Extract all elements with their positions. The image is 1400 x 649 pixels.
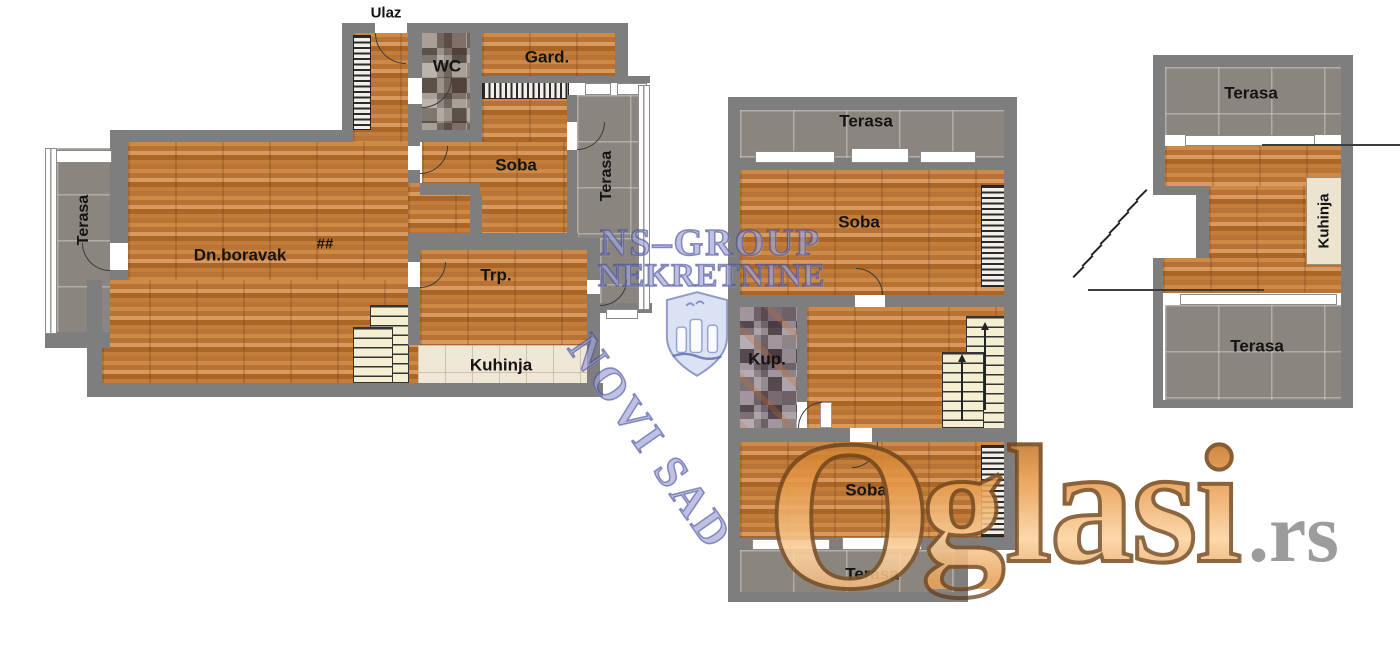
wall — [87, 383, 603, 397]
floor-mark: ## — [317, 237, 334, 252]
room-label-terrace-top: Terasa — [839, 113, 893, 130]
room-label-kitchen: Kuhinja — [1317, 194, 1332, 249]
site-watermark-initial: O — [766, 407, 933, 622]
door-opening — [375, 23, 407, 33]
section-line — [1088, 289, 1264, 291]
wall — [567, 150, 577, 238]
wall — [482, 76, 650, 83]
wall — [470, 195, 482, 235]
door-opening — [408, 146, 420, 170]
door-opening — [855, 295, 885, 307]
wall — [885, 295, 1004, 307]
roof-hatch-mark — [1072, 266, 1084, 278]
wall — [1341, 55, 1353, 408]
room-label-entrance: Ulaz — [371, 6, 402, 21]
wardrobe-cabinet — [981, 185, 1005, 287]
room-label-kitchen: Kuhinja — [470, 357, 532, 374]
room-label-bathroom: Kup. — [748, 351, 786, 368]
window-sill — [55, 150, 112, 163]
window-sill — [920, 151, 976, 163]
site-watermark: O g lasi .rs — [766, 381, 1339, 596]
room-label-terrace-right: Terasa — [599, 151, 615, 201]
room-label-terrace-top: Terasa — [1224, 85, 1278, 102]
stair-direction-arrow — [958, 354, 966, 362]
terrace-window — [45, 148, 57, 334]
site-watermark-g: g — [921, 421, 1005, 589]
wall — [470, 23, 482, 142]
wall — [1196, 195, 1209, 258]
wall — [45, 332, 110, 348]
wall — [110, 130, 346, 142]
wall — [110, 270, 128, 280]
wall — [575, 238, 600, 250]
window-sill — [585, 83, 611, 95]
door-opening — [110, 243, 128, 270]
window-sill — [1180, 294, 1337, 305]
wall — [567, 95, 577, 122]
room-label-bedroom-top: Soba — [838, 214, 880, 231]
room-label-bedroom: Soba — [495, 157, 537, 174]
door-opening — [408, 262, 420, 287]
wall — [408, 287, 420, 345]
wall — [1153, 186, 1209, 195]
wall — [408, 250, 420, 262]
wall — [740, 295, 855, 307]
wall — [728, 97, 1017, 110]
wall — [408, 233, 578, 250]
agency-watermark-line1: NS–GROUP — [600, 224, 821, 262]
wall — [615, 23, 628, 76]
room-label-living-room: Dn.boravak — [194, 247, 287, 264]
window-sill — [851, 148, 909, 163]
section-line — [1262, 144, 1400, 146]
wall — [110, 142, 128, 243]
wall — [408, 33, 422, 78]
door-opening — [408, 78, 422, 104]
wall — [408, 170, 420, 183]
door-opening — [567, 122, 577, 150]
window-sill — [606, 309, 638, 319]
wardrobe-cabinet — [482, 82, 569, 99]
wardrobe-cabinet — [353, 35, 371, 130]
wall — [1153, 67, 1165, 186]
staircase — [353, 327, 393, 383]
room-label-dining: Trp. — [480, 267, 511, 284]
room-label-terrace-bottom: Terasa — [1230, 338, 1284, 355]
room-label-wc: WC — [433, 58, 461, 75]
agency-watermark-line2: NEKRETNINE — [598, 260, 825, 293]
floorplan-canvas: Ulaz WC Gard. Soba Terasa Terasa Dn.bora… — [0, 0, 1400, 649]
wall — [1153, 55, 1353, 67]
room-label-wardrobe-room: Gard. — [525, 49, 569, 66]
window-sill — [755, 151, 835, 163]
wall — [420, 183, 480, 195]
bedroom-floor — [482, 97, 567, 142]
wall — [342, 33, 353, 142]
stair-direction-arrow — [981, 322, 989, 330]
wall — [408, 104, 422, 132]
novi-sad-shield-logo — [663, 290, 731, 378]
site-watermark-rest: lasi — [1005, 421, 1240, 589]
room-label-terrace-left: Terasa — [76, 195, 92, 245]
site-watermark-suffix: .rs — [1248, 492, 1339, 576]
